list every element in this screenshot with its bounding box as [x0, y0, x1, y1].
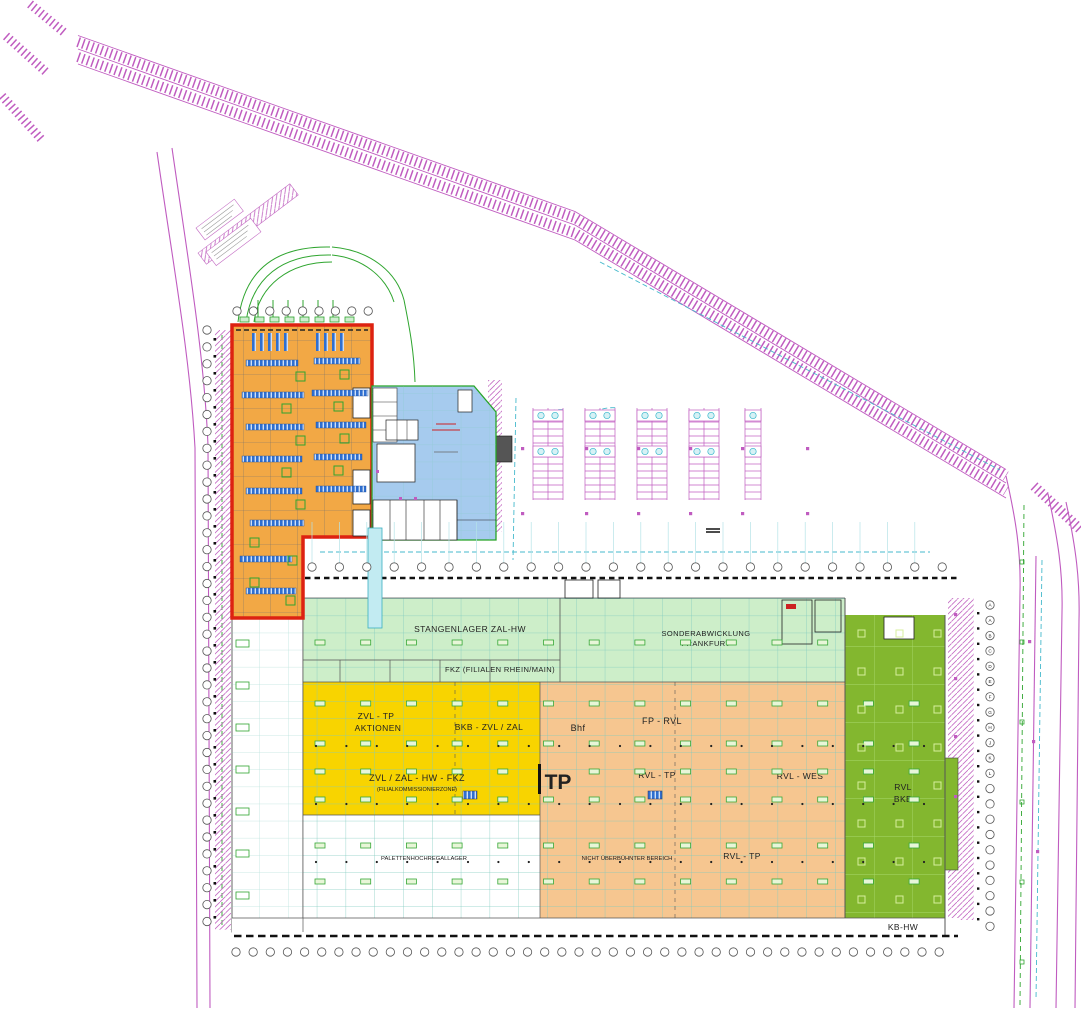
grid-axis-bubble [203, 562, 211, 570]
rack-bar [242, 456, 302, 462]
dock-door-icon [236, 640, 249, 647]
grid-axis-bubble [918, 948, 926, 956]
zone-label-fkz: FKZ (FILIALEN RHEIN/MAIN) [445, 665, 555, 674]
column-dot [710, 861, 712, 863]
skylight-icon [772, 640, 782, 645]
skylight-icon [452, 701, 462, 706]
column-dot [649, 861, 651, 863]
skylight-icon [544, 701, 554, 706]
skylight-icon [406, 797, 416, 802]
column-dot [680, 745, 682, 747]
grid-axis-bubble [472, 563, 480, 571]
zone-label-zvl-zal-hw-fkz: ZVL / ZAL - HW - FKZ [369, 773, 465, 783]
dock-door-icon [240, 317, 249, 322]
tree-square-icon [1020, 960, 1024, 964]
column-dot [558, 803, 560, 805]
dock-door-icon [236, 808, 249, 815]
skylight-icon [772, 843, 782, 848]
zone-label-filialkommi: (FILIALKOMMISSIONIERZONE) [377, 787, 457, 793]
tree-icon [538, 448, 544, 454]
dock-door-icon [300, 317, 309, 322]
grid-axis-bubble [691, 563, 699, 571]
column-dot [801, 861, 803, 863]
grid-axis-bubble [352, 948, 360, 956]
column-marker [214, 865, 217, 868]
column-marker [214, 593, 217, 596]
grid-axis-bubble [203, 596, 211, 604]
grid-axis-bubble [266, 307, 274, 315]
lamp-icon [806, 512, 809, 515]
column-marker [214, 712, 217, 715]
grid-axis-bubble [489, 948, 497, 956]
column-dot [437, 745, 439, 747]
column-marker [214, 729, 217, 732]
grid-axis-bubble [420, 948, 428, 956]
skylight-icon [863, 879, 873, 884]
column-marker [977, 811, 979, 813]
grid-axis-bubble [609, 563, 617, 571]
column-dot [406, 861, 408, 863]
grid-axis-bubble [203, 360, 211, 368]
skylight-icon [681, 769, 691, 774]
column-dot [771, 861, 773, 863]
grid-axis-bubble [986, 800, 994, 808]
skylight-icon [498, 797, 508, 802]
grid-axis-bubble [203, 917, 211, 925]
grid-axis-bubble [523, 948, 531, 956]
lamp-icon [954, 677, 957, 680]
skylight-icon [452, 879, 462, 884]
skylight-icon [452, 797, 462, 802]
dock-door-icon [330, 317, 339, 322]
column-marker [214, 474, 217, 477]
skylight-icon [726, 640, 736, 645]
zone-label-rvl-wes: RVL - WES [777, 771, 824, 781]
grid-axis-bubble [363, 563, 371, 571]
grid-axis-bubble [986, 907, 994, 915]
column-marker [977, 918, 979, 920]
rack-bar [250, 520, 304, 526]
grid-axis-bubble [637, 563, 645, 571]
column-marker [977, 872, 979, 874]
zone-label-bhf: Bhf [571, 723, 586, 733]
grid-axis-bubble [527, 563, 535, 571]
grid-axis-bubble [318, 948, 326, 956]
grid-axis-bubble [986, 892, 994, 900]
column-dot [893, 861, 895, 863]
connector-bridge [368, 528, 382, 628]
utility-block [496, 436, 512, 462]
column-marker [214, 423, 217, 426]
parking-cluster [533, 408, 563, 500]
column-dot [467, 803, 469, 805]
zone-label-zvl-tp-2: AKTIONEN [355, 723, 402, 733]
column-dot [801, 745, 803, 747]
grid-axis-bubble [203, 799, 211, 807]
lamp-icon [689, 512, 692, 515]
column-dot [376, 745, 378, 747]
column-marker [977, 643, 979, 645]
grid-axis-bubble [986, 830, 994, 838]
grid-axis-bubble [558, 948, 566, 956]
skylight-icon [498, 843, 508, 848]
grid-axis-bubble [455, 948, 463, 956]
column-marker [214, 797, 217, 800]
column-dot [497, 745, 499, 747]
dock-door-icon [255, 317, 264, 322]
zone-label-tp: TP [545, 771, 572, 794]
grid-axis-bubble [203, 647, 211, 655]
column-dot [741, 745, 743, 747]
atrium [377, 444, 415, 482]
skylight-icon [635, 701, 645, 706]
scale-mark [706, 529, 720, 532]
skylight-icon [361, 701, 371, 706]
column-marker [977, 796, 979, 798]
column-dot [528, 803, 530, 805]
skylight-icon [909, 701, 919, 706]
grid-axis-bubble [203, 512, 211, 520]
dock-door-icon [270, 317, 279, 322]
grid-axis-bubble [203, 529, 211, 537]
grid-axis-letter: E [988, 679, 991, 684]
tree-icon [552, 412, 558, 418]
parking-cluster [745, 408, 761, 500]
grid-axis-bubble [369, 948, 377, 956]
skylight-icon [909, 769, 919, 774]
lamp-icon [521, 447, 524, 450]
grid-axis-bubble [746, 563, 754, 571]
lamp-icon [954, 795, 957, 798]
skylight-icon [818, 797, 828, 802]
column-dot [315, 861, 317, 863]
lamp-icon [741, 447, 744, 450]
grid-axis-bubble [203, 731, 211, 739]
column-dot [528, 745, 530, 747]
tree-icon [694, 448, 700, 454]
lamp-icon [585, 512, 588, 515]
lamp-icon [954, 735, 957, 738]
column-dot [862, 745, 864, 747]
tree-icon [656, 412, 662, 418]
column-dot [589, 803, 591, 805]
skylight-icon [909, 843, 919, 848]
skylight-icon [681, 879, 691, 884]
rack-bar-vertical [340, 333, 344, 351]
column-marker [214, 525, 217, 528]
grid-axis-bubble [506, 948, 514, 956]
column-marker [977, 658, 979, 660]
right-road [1006, 476, 1079, 1008]
tree-icon [708, 448, 714, 454]
skylight-icon [589, 741, 599, 746]
grid-axis-bubble [203, 748, 211, 756]
dock-door-icon [236, 892, 249, 899]
column-dot [437, 861, 439, 863]
grid-axis-bubble [828, 563, 836, 571]
green-grid [845, 615, 945, 918]
grid-axis-bubble [331, 307, 339, 315]
column-dot [923, 745, 925, 747]
grid-axis-bubble [300, 948, 308, 956]
column-marker [214, 610, 217, 613]
tree-icon [590, 412, 596, 418]
grid-axis-bubble [390, 563, 398, 571]
column-marker [977, 765, 979, 767]
skylight-icon [863, 843, 873, 848]
skylight-icon [726, 741, 736, 746]
skylight-icon [818, 640, 828, 645]
skylight-icon [726, 769, 736, 774]
rack-bar [314, 454, 362, 460]
main-warehouse-hall [232, 529, 958, 936]
zone-label-sonder-1: SONDERABWICKLUNG [662, 629, 751, 638]
skylight-icon [315, 879, 325, 884]
grid-axis-letter: L [989, 771, 992, 776]
grid-axis-bubble [883, 563, 891, 571]
column-dot [376, 803, 378, 805]
column-marker [214, 372, 217, 375]
dock-door-icon [315, 317, 324, 322]
grid-axis-letter: J [989, 740, 991, 745]
dock-door-icon [285, 317, 294, 322]
column-marker [977, 750, 979, 752]
skylight-icon [498, 640, 508, 645]
stair-core-blue [458, 390, 472, 412]
column-marker [977, 612, 979, 614]
skylight-icon [818, 769, 828, 774]
parking-cluster [637, 408, 667, 500]
skylight-icon [909, 879, 919, 884]
column-marker [214, 848, 217, 851]
grid-axis-bubble [986, 846, 994, 854]
grid-axis-bubble [774, 563, 782, 571]
column-marker [977, 704, 979, 706]
column-marker [214, 440, 217, 443]
tree-square-icon [1020, 640, 1024, 644]
skylight-icon [681, 843, 691, 848]
grid-axis-bubble [986, 815, 994, 823]
skylight-icon [863, 797, 873, 802]
grid-axis-bubble [203, 427, 211, 435]
lamp-icon [521, 512, 524, 515]
grid-axis-bubble [203, 681, 211, 689]
column-marker [214, 406, 217, 409]
tree-icon [604, 412, 610, 418]
grid-axis-bubble [203, 393, 211, 401]
zone-label-fp-rvl: FP - RVL [642, 716, 682, 726]
grid-axis-bubble [203, 782, 211, 790]
column-dot [315, 745, 317, 747]
column-dot [832, 745, 834, 747]
grid-axis-bubble [712, 948, 720, 956]
rack-bar-vertical [284, 333, 288, 351]
column-dot [406, 803, 408, 805]
grid-axis-bubble [911, 563, 919, 571]
skylight-icon [544, 640, 554, 645]
tree-icon [694, 412, 700, 418]
rack-bar [316, 486, 366, 492]
zone-label-bkb-zvl-zal: BKB - ZVL / ZAL [455, 722, 524, 732]
zone-green-bump [945, 758, 958, 870]
column-marker [214, 831, 217, 834]
grid-axis-bubble [719, 563, 727, 571]
rack-bar [240, 556, 292, 562]
column-dot [406, 745, 408, 747]
skylight-icon [498, 879, 508, 884]
column-dot [345, 803, 347, 805]
grid-axis-bubble [335, 563, 343, 571]
grid-axis-bubble [203, 444, 211, 452]
grid-axis-bubble [866, 948, 874, 956]
grid-axis-bubble [203, 715, 211, 723]
grid-axis-bubble [203, 884, 211, 892]
column-marker [977, 842, 979, 844]
west-annex-grid [232, 618, 303, 932]
green-zone-gap [845, 598, 945, 615]
west-parking-strip [215, 330, 231, 930]
wall-segment [538, 764, 541, 794]
grid-axis-bubble [986, 876, 994, 884]
grid-axis-bubble [884, 948, 892, 956]
skylight-icon [589, 701, 599, 706]
column-marker [214, 389, 217, 392]
lamp-icon [637, 512, 640, 515]
band-grid [303, 598, 845, 682]
grid-axis-bubble [403, 948, 411, 956]
zone-label-zvl-tp-1: ZVL - TP [358, 711, 395, 721]
column-dot [741, 803, 743, 805]
column-marker [214, 916, 217, 919]
parking-cluster [689, 408, 719, 500]
dock-door-icon [236, 850, 249, 857]
column-marker [977, 903, 979, 905]
skylight-icon [772, 741, 782, 746]
grid-axis-bubble [643, 948, 651, 956]
red-marker [786, 604, 796, 609]
column-marker [214, 627, 217, 630]
grid-axis-letter: G [988, 710, 992, 715]
rack-bar [246, 488, 302, 494]
grid-axis-bubble [856, 563, 864, 571]
skylight-icon [406, 879, 416, 884]
skylight-icon [726, 843, 736, 848]
grid-axis-bubble [203, 664, 211, 672]
south-strip [232, 918, 958, 936]
column-dot [467, 861, 469, 863]
column-dot [497, 861, 499, 863]
zone-label-rvl-1: RVL [894, 782, 912, 792]
column-marker [214, 559, 217, 562]
skylight-icon [452, 843, 462, 848]
skylight-icon [589, 640, 599, 645]
grid-axis-bubble [554, 563, 562, 571]
skylight-icon [452, 640, 462, 645]
grid-axis-bubble [249, 948, 257, 956]
rack-bar-vertical [324, 333, 328, 351]
grid-axis-bubble [781, 948, 789, 956]
rack-bar-vertical [268, 333, 272, 351]
grid-axis-letter: H [988, 725, 991, 730]
grid-axis-bubble [763, 948, 771, 956]
grid-axis-bubble [438, 948, 446, 956]
grid-axis-bubble [203, 343, 211, 351]
skylight-icon [726, 879, 736, 884]
grid-axis-bubble [203, 613, 211, 621]
grid-axis-letter: B [988, 633, 991, 638]
grid-axis-bubble [203, 630, 211, 638]
column-marker [214, 882, 217, 885]
column-dot [589, 861, 591, 863]
rack-bar [314, 358, 360, 364]
skylight-icon [544, 879, 554, 884]
grid-axis-bubble [445, 563, 453, 571]
column-marker [977, 719, 979, 721]
grid-axis-bubble [695, 948, 703, 956]
tree-icon [552, 448, 558, 454]
column-dot [710, 803, 712, 805]
legend-chip-1 [463, 791, 477, 799]
grid-axis-bubble [203, 478, 211, 486]
grid-axis-bubble [849, 948, 857, 956]
grid-axis-bubble [678, 948, 686, 956]
column-marker [977, 780, 979, 782]
column-marker [977, 734, 979, 736]
office-rooms-mid [386, 420, 418, 440]
column-dot [923, 861, 925, 863]
skylight-icon [635, 741, 645, 746]
left-road [157, 148, 210, 1008]
grid-axis-bubble [582, 563, 590, 571]
column-marker [214, 695, 217, 698]
rack-bar [246, 360, 298, 366]
skylight-icon [772, 879, 782, 884]
column-marker [977, 689, 979, 691]
site-plan-drawing: STANGENLAGER ZAL-HW FKZ (FILIALEN RHEIN/… [0, 0, 1081, 1011]
grid-axis-bubble [986, 784, 994, 792]
skylight-icon [726, 701, 736, 706]
column-dot [710, 745, 712, 747]
column-dot [862, 861, 864, 863]
grid-axis-bubble [626, 948, 634, 956]
skylight-icon [361, 843, 371, 848]
grid-axis-bubble [500, 563, 508, 571]
skylight-icon [818, 701, 828, 706]
grid-axis-bubble [746, 948, 754, 956]
grid-axis-bubble [282, 307, 290, 315]
grid-axis-bubble [283, 948, 291, 956]
rack-bar [316, 422, 366, 428]
rack-bar [246, 424, 304, 430]
grid-axis-bubble [661, 948, 669, 956]
rack-bar-vertical [316, 333, 320, 351]
skylight-icon [406, 769, 416, 774]
column-marker [977, 627, 979, 629]
skylight-icon [818, 741, 828, 746]
grid-axis-bubble [335, 948, 343, 956]
grid-axis-bubble [232, 948, 240, 956]
lamp-icon [1032, 740, 1035, 743]
column-marker [214, 899, 217, 902]
lamp-icon [1036, 850, 1039, 853]
skylight-icon [361, 797, 371, 802]
column-marker [214, 576, 217, 579]
lamp-icon [585, 447, 588, 450]
column-dot [649, 745, 651, 747]
column-dot [315, 803, 317, 805]
rack-bar [246, 588, 296, 594]
skylight-icon [589, 879, 599, 884]
